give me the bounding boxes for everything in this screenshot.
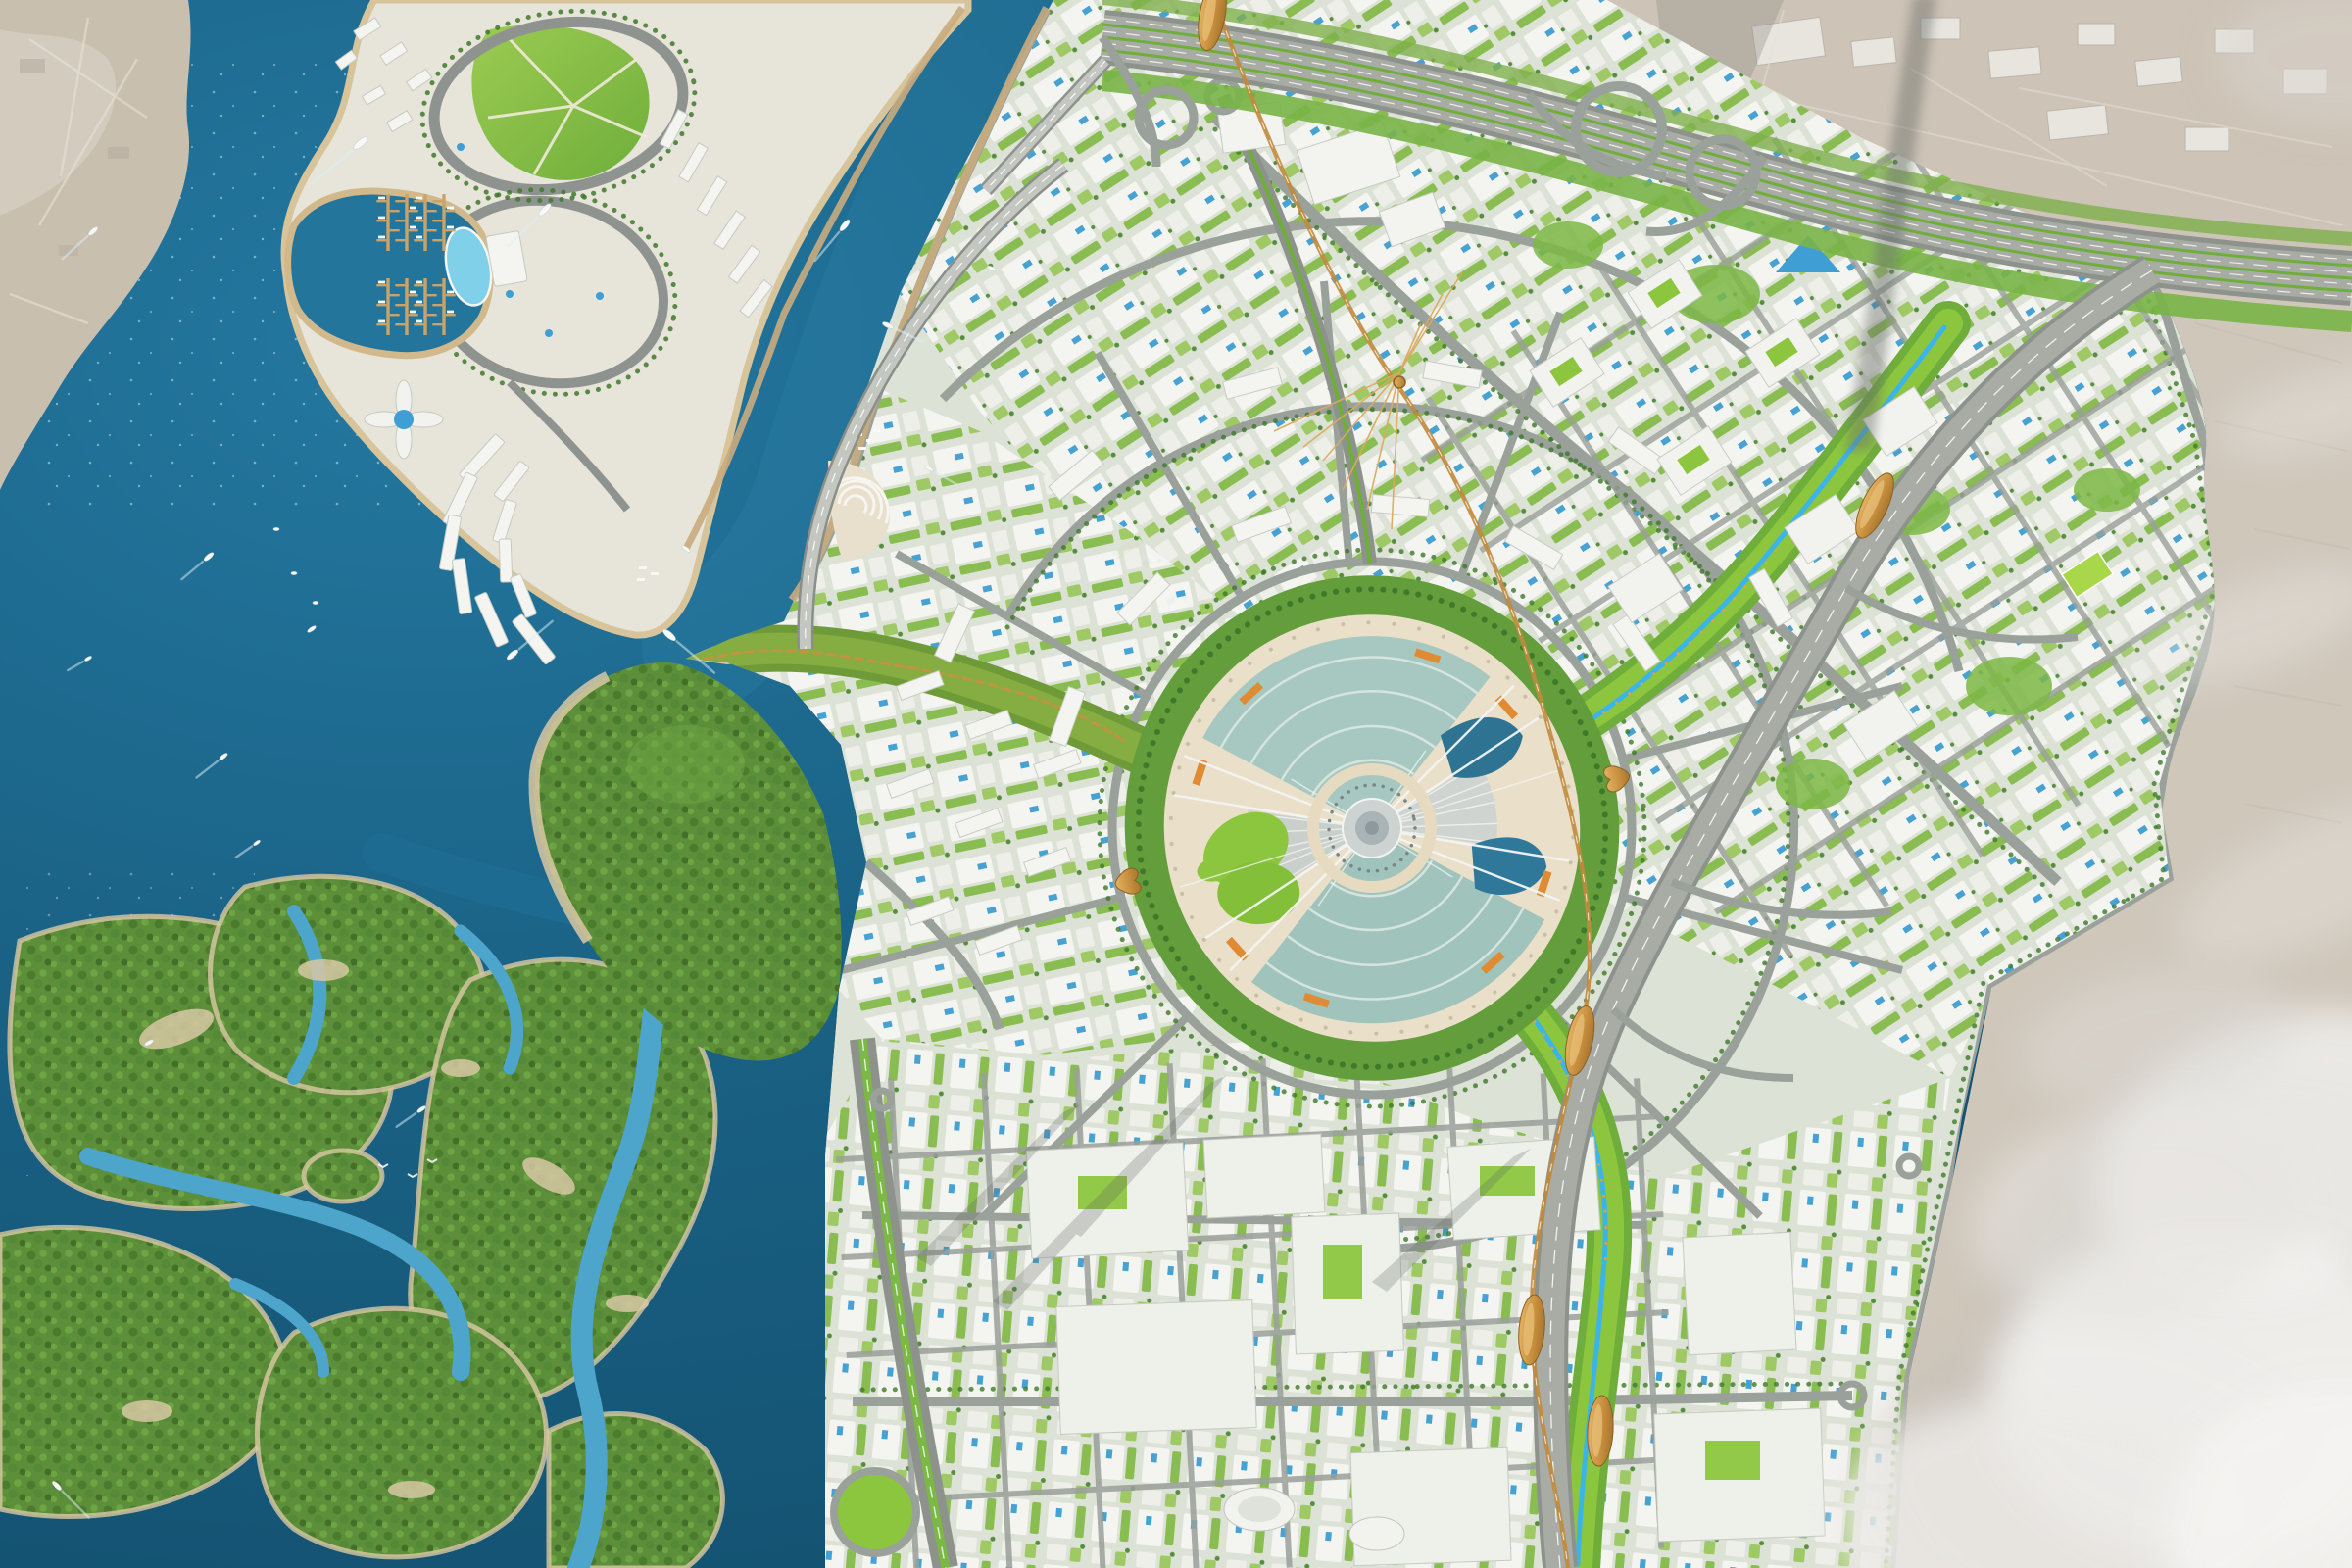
boat [313,601,318,604]
boat [273,527,279,530]
boat-hull [273,527,279,530]
dome-arena-2 [1349,1517,1404,1550]
boat-hull [291,571,297,574]
roundabout-park [834,1471,916,1553]
masterplan-aerial-render [0,0,2352,1568]
boat [291,571,297,574]
masterplan-screenshot [0,0,2352,1568]
dome-arena-roof [1238,1496,1281,1522]
boat-hull [313,601,318,604]
